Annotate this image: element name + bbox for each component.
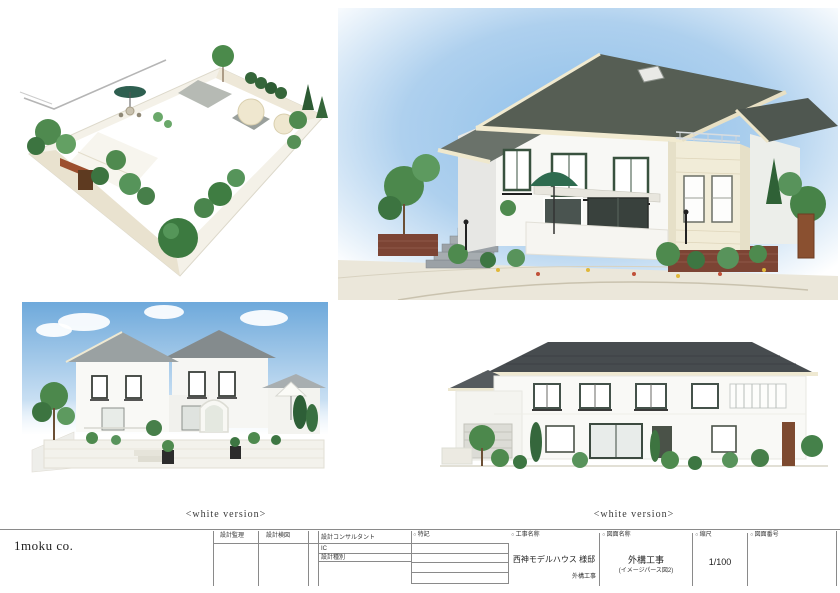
ground-floor-patio [526, 186, 668, 260]
tb-rule [318, 561, 411, 562]
white-version-left-caption: <white version> [186, 509, 266, 520]
footer-divider-line [0, 529, 840, 530]
tb-notes-label: ○特記 [413, 532, 430, 538]
tb-rule [747, 533, 748, 586]
tb-consultant-label: 設計コンサルタント [321, 535, 375, 541]
tb-work-name-value: 西神モデルハウス 様邸 [513, 556, 595, 564]
circle-marker: ○ [695, 533, 698, 538]
tb-rule [836, 531, 837, 586]
tb-rule [213, 543, 508, 544]
tb-rule [692, 533, 693, 586]
rust-gate-panel [798, 214, 814, 258]
circle-marker: ○ [511, 533, 514, 538]
tb-design-check-label: 設計検図 [266, 533, 290, 539]
tb-drawing-name-value: 外構工事 [628, 556, 664, 565]
garden-plan-render [8, 12, 338, 297]
company-name: 1moku co. [14, 538, 73, 554]
tb-rule [308, 531, 309, 586]
tb-rule [411, 572, 508, 573]
tb-rule [508, 543, 509, 584]
garden-plan-figure [8, 12, 338, 302]
tb-rule [599, 533, 600, 586]
tb-rule [318, 553, 508, 554]
circle-marker: ○ [413, 533, 416, 538]
arch-gate [200, 400, 228, 432]
tb-drawing-name-sub-value: (イメージパース図2) [619, 568, 674, 574]
tb-rule [258, 531, 259, 586]
drawing-sheet: <white version> [0, 0, 840, 593]
tb-rule [213, 531, 214, 586]
tb-rule [318, 531, 319, 586]
tb-design-type-label: 設計種別 [321, 555, 345, 561]
house-elevation-white-version-render [430, 326, 835, 506]
tb-drawing-no-label: ○図面番号 [750, 532, 779, 538]
main-perspective-figure [338, 8, 838, 305]
tb-work-name-sub-value: 外構工事 [572, 574, 596, 580]
tb-ic-label: IC [321, 546, 327, 552]
circle-marker: ○ [602, 533, 605, 538]
tb-rule [411, 583, 508, 584]
tb-rule [411, 562, 508, 563]
tb-rule [411, 531, 412, 584]
white-version-perspective-figure [14, 300, 336, 513]
tb-scale-value: 1/100 [709, 558, 732, 567]
tb-design-supervision-label: 設計監理 [220, 533, 244, 539]
tb-scale-label: ○縮尺 [695, 532, 712, 538]
tb-drawing-name-label: ○図面名称 [602, 532, 631, 538]
house-perspective-white-version-render [14, 300, 336, 508]
tb-work-name-label: ○工事名称 [511, 532, 540, 538]
white-version-right-caption: <white version> [594, 509, 674, 520]
house-perspective-render [338, 8, 838, 300]
white-version-elevation-figure [430, 326, 835, 511]
circle-marker: ○ [750, 533, 753, 538]
balcony-railing [730, 384, 786, 408]
